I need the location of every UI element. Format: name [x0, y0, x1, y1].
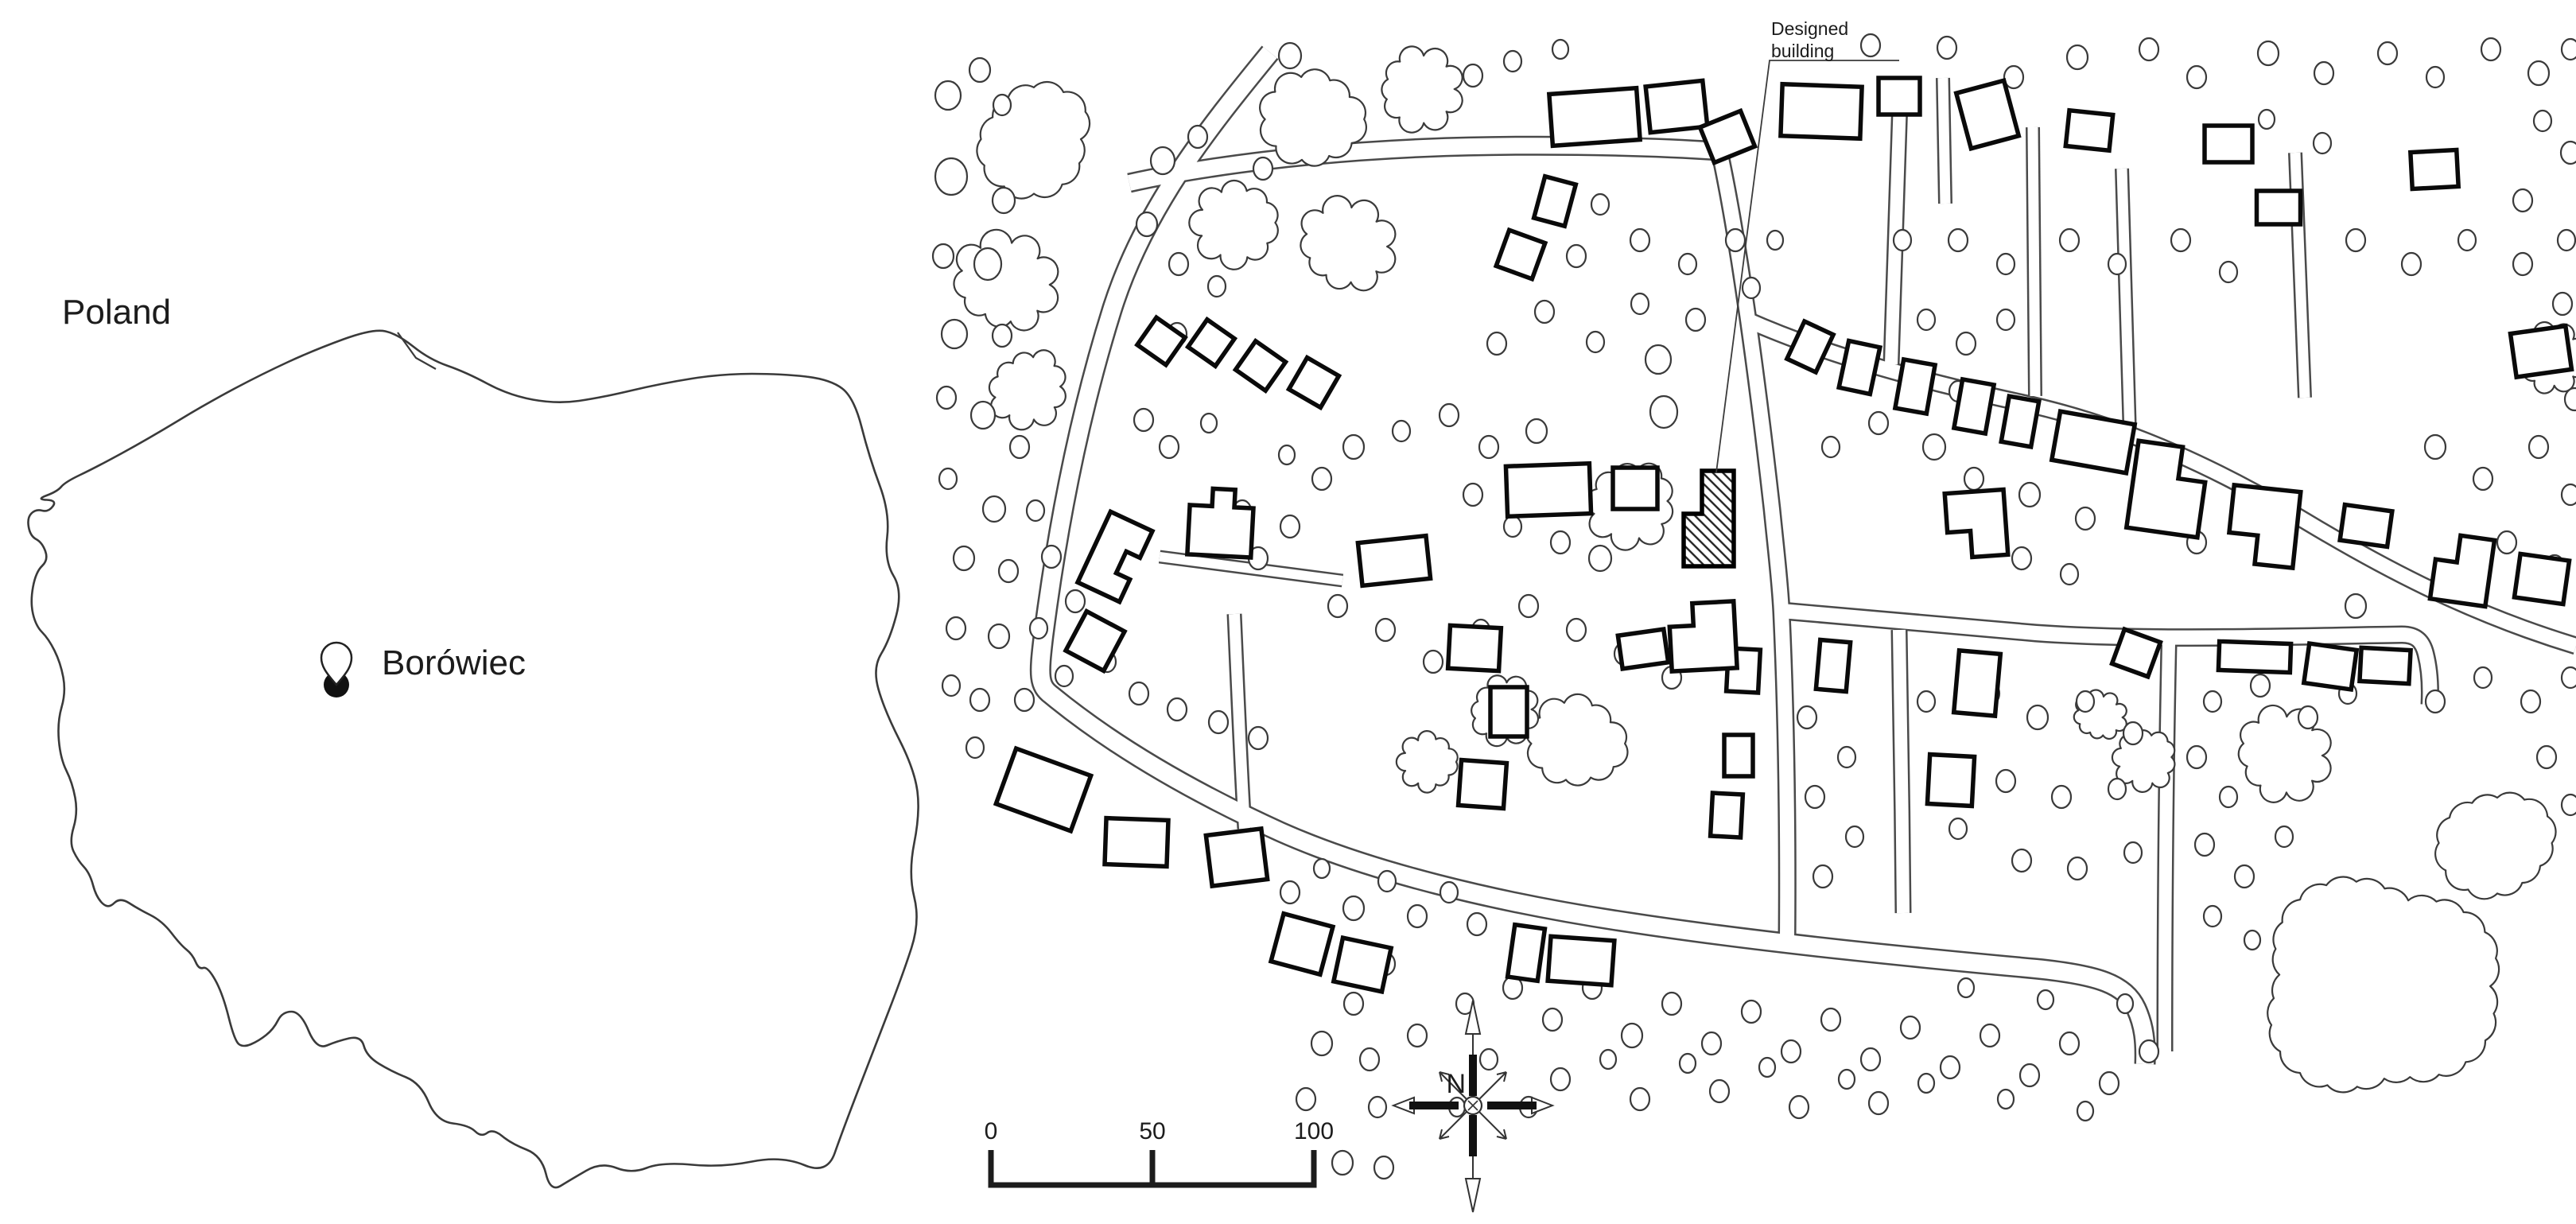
tree-circle [2537, 746, 2556, 768]
building [1787, 321, 1833, 372]
tree-circle [2314, 133, 2331, 153]
tree-circle [1822, 437, 1840, 457]
tree-circle [1980, 1024, 1999, 1047]
scale-tick-0: 0 [985, 1118, 998, 1144]
scale-tick-50: 50 [1139, 1118, 1165, 1144]
tree-circle [1964, 468, 1983, 490]
tree-circle [1311, 1032, 1332, 1055]
building [1839, 340, 1880, 394]
tree-circle [1480, 1049, 1498, 1070]
tree-circle [2426, 67, 2444, 87]
building [2514, 554, 2569, 604]
tree-circle [1279, 43, 1301, 68]
tree-circle [2521, 690, 2540, 713]
building [1954, 379, 1994, 433]
tree-circle [2529, 436, 2548, 458]
tree-circle [1956, 332, 1976, 355]
building [2511, 326, 2572, 377]
tree-circle [989, 624, 1009, 648]
tree-circle [1996, 770, 2015, 792]
tree-circle [1861, 34, 1880, 56]
tree-circle [969, 58, 990, 82]
building-l-shape [1078, 511, 1152, 601]
tree-circle [1821, 1008, 1840, 1031]
tree-circle [2562, 484, 2576, 505]
tree-circle [2077, 691, 2094, 712]
tree-circle [1015, 689, 1034, 711]
scale-bar: 0 50 100 [985, 1118, 1334, 1185]
tree-circle [2314, 62, 2333, 84]
tree-circle [2402, 253, 2421, 275]
tree-circle [966, 737, 984, 758]
figure-canvas: Poland Borówiec Designed building 0 50 1… [0, 0, 2576, 1224]
tree-circle [2345, 594, 2366, 618]
tree-circle [1680, 1054, 1696, 1073]
tree-circle [1360, 1048, 1379, 1071]
tree-circle [2187, 66, 2206, 88]
tree-circle [2473, 468, 2492, 490]
tree-cluster [2435, 793, 2555, 900]
building [1490, 687, 1527, 736]
building [1508, 925, 1545, 981]
tree-circle [2038, 990, 2053, 1009]
tree-circle [1622, 1024, 1642, 1047]
tree-circle [1997, 309, 2015, 330]
tree-circle [2139, 38, 2158, 60]
tree-circle [2204, 691, 2221, 712]
tree-circle [2244, 931, 2260, 950]
tree-circle [1312, 468, 1331, 490]
tree-circle [2139, 1040, 2158, 1063]
tree-circle [2061, 564, 2078, 585]
tree-circle [1918, 1074, 1934, 1093]
tree-circle [1209, 711, 1228, 733]
tree-circle [1997, 254, 2015, 274]
tree-circle [1314, 859, 1330, 878]
tree-circle [2012, 849, 2031, 872]
building [2065, 111, 2112, 151]
tree-circle [1369, 1097, 1386, 1117]
building [1271, 914, 1333, 974]
building [2411, 150, 2458, 189]
tree-circle [1813, 865, 1832, 888]
tree-circle [971, 402, 995, 429]
tree-circle [2027, 705, 2048, 729]
tree-circle [2020, 1064, 2039, 1086]
tree-circle [1587, 332, 1604, 352]
tree-circle [2117, 994, 2133, 1013]
tree-circle [1838, 747, 1855, 767]
poland-inset-map: Poland Borówiec [28, 293, 918, 1187]
building [1506, 464, 1591, 517]
vegetation-layer [933, 34, 2576, 1179]
tree-circle [935, 81, 961, 110]
tree-circle [1408, 905, 1427, 927]
road-surface [2033, 127, 2035, 396]
tree-circle [1424, 651, 1443, 673]
tree-circle [999, 560, 1018, 582]
tree-circle [2108, 779, 2126, 799]
tree-circle [1343, 435, 1364, 459]
tree-circle [1504, 51, 1521, 72]
compass-bar-s [1469, 1115, 1477, 1156]
tree-circle [2562, 39, 2576, 60]
tree-circle [2067, 45, 2088, 69]
tree-circle [1487, 332, 1506, 355]
tree-circle [1249, 727, 1268, 749]
tree-circle [1408, 1024, 1427, 1047]
tree-circle [2558, 230, 2575, 251]
building [1236, 341, 1286, 391]
building [1206, 829, 1267, 886]
tree-circle [1552, 40, 1568, 59]
tree-cluster [1381, 46, 1462, 132]
tree-circle [1160, 436, 1179, 458]
tree-circle [1861, 1048, 1880, 1071]
building-l-shape [1187, 488, 1254, 558]
tree-circle [2259, 110, 2275, 129]
building [1358, 536, 1430, 586]
tree-circle [2124, 842, 2142, 863]
building [1895, 359, 1935, 414]
tree-circle [1280, 515, 1300, 538]
tree-circle [983, 496, 1005, 522]
tree-circle [2458, 230, 2476, 251]
tree-circle [1645, 345, 1671, 374]
tree-circle [1949, 229, 1968, 251]
tree-circle [1280, 881, 1300, 903]
tree-circle [1662, 993, 1681, 1015]
compass-bar-w [1409, 1102, 1459, 1109]
tree-circle [2076, 507, 2095, 530]
tree-circle [1742, 1001, 1761, 1023]
poland-outline [28, 331, 918, 1187]
building [1816, 639, 1850, 691]
tree-circle [1630, 1088, 1649, 1110]
tree-circle [1479, 436, 1498, 458]
tree-circle [1279, 445, 1295, 464]
tree-circle [1551, 1068, 1570, 1090]
designed-building-label-line1: Designed [1771, 18, 1848, 39]
location-pin-icon [321, 643, 352, 697]
building [2001, 396, 2038, 447]
building [1613, 468, 1657, 509]
tree-circle [2052, 786, 2071, 808]
building [2340, 505, 2392, 547]
building [1645, 80, 1708, 132]
tree-circle [1789, 1096, 1809, 1118]
country-label: Poland [62, 293, 171, 332]
building [1534, 177, 1576, 227]
tree-circle [1743, 278, 1760, 298]
tree-circle [1759, 1058, 1775, 1077]
tree-circle [1344, 993, 1363, 1015]
tree-circle [2060, 1032, 2079, 1055]
tree-circle [1378, 871, 1396, 892]
tree-circle [2513, 189, 2532, 212]
tree-circle [1958, 978, 1974, 997]
tree-circle [1042, 546, 1061, 568]
tree-circle [954, 546, 974, 570]
tree-circle [1030, 618, 1047, 639]
tree-circle [1551, 531, 1570, 554]
tree-circle [1151, 147, 1175, 174]
tree-circle [2204, 906, 2221, 927]
tree-circle [1027, 500, 1044, 521]
tree-circle [1328, 595, 1347, 617]
building [1188, 320, 1234, 366]
tree-circle [2534, 111, 2551, 131]
tree-circle [1136, 212, 1157, 236]
tree-circle [2561, 142, 2576, 164]
tree-circle [1923, 434, 1945, 460]
tree-circle [970, 689, 989, 711]
tree-circle [1253, 157, 1272, 180]
tree-circle [2528, 61, 2549, 85]
tree-circle [2019, 483, 2040, 507]
tree-circle [2553, 293, 2572, 315]
building-l-shape [2226, 485, 2301, 568]
tree-circle [2235, 865, 2254, 888]
tree-circle [1567, 619, 1586, 641]
building [1711, 793, 1743, 837]
tree-circle [2123, 722, 2143, 744]
tree-circle [1869, 1092, 1888, 1114]
tree-circle [1535, 301, 1554, 323]
building [1105, 818, 1168, 867]
building [996, 748, 1090, 831]
tree-circle [1937, 37, 1956, 59]
tree-circle [1846, 826, 1863, 847]
building [2304, 643, 2356, 690]
tree-circle [1781, 1040, 1801, 1063]
building [1956, 80, 2019, 149]
tree-circle [2562, 667, 2576, 688]
road-surface [1899, 630, 1903, 913]
building [1879, 78, 1920, 115]
road-surface [1943, 78, 1945, 204]
tree-circle [1055, 666, 1073, 686]
scale-bar-line [991, 1150, 1314, 1185]
tree-circle [1504, 516, 1521, 537]
tree-cluster [1300, 196, 1395, 290]
tree-circle [1917, 309, 1935, 330]
site-location-figure: Poland Borówiec Designed building 0 50 1… [0, 0, 2576, 1224]
building-l-shape [1945, 490, 2008, 559]
tree-circle [1543, 1008, 1562, 1031]
tree-circle [1998, 1090, 2014, 1109]
tree-circle [1376, 619, 1395, 641]
building [1448, 625, 1502, 670]
building [2052, 411, 2135, 473]
building [1459, 760, 1507, 809]
tree-circle [1631, 293, 1649, 314]
compass-arrow-s [1466, 1179, 1480, 1212]
tree-circle [2108, 254, 2126, 274]
tree-circle [2562, 795, 2576, 815]
building [1289, 358, 1339, 408]
building [2360, 647, 2411, 683]
tree-circle [2497, 531, 2516, 554]
tree-circle [1767, 231, 1783, 250]
tree-circle [1941, 1056, 1960, 1078]
compass-bar-e [1487, 1102, 1537, 1109]
tree-circle [1710, 1080, 1729, 1102]
tree-cluster [989, 350, 1066, 429]
tree-circle [933, 244, 954, 268]
building [1781, 84, 1862, 138]
tree-circle [2513, 253, 2532, 275]
building-l-shape [1669, 601, 1737, 671]
designed-building-label-line2: building [1771, 41, 1834, 61]
tree-circle [1440, 882, 1458, 903]
tree-circle [1208, 276, 1226, 297]
road-surface [2165, 644, 2169, 1051]
tree-circle [2077, 1102, 2093, 1121]
tree-circle [1600, 1050, 1616, 1069]
tree-circle [942, 675, 960, 696]
tree-circle [1702, 1032, 1721, 1055]
tree-circle [2378, 42, 2397, 64]
tree-circle [1463, 484, 1482, 506]
building [1334, 938, 1391, 992]
tree-cluster [1397, 731, 1458, 792]
tree-circle [2425, 435, 2446, 459]
road-surface [1129, 146, 1719, 183]
tree-circle [2275, 826, 2293, 847]
tree-circle [1169, 253, 1188, 275]
building [1618, 629, 1668, 669]
tree-circle [946, 617, 966, 639]
tree-circle [1129, 682, 1148, 705]
building [1496, 230, 1545, 279]
tree-circle [1519, 595, 1538, 617]
tree-circle [2195, 833, 2214, 856]
tree-circle [1188, 126, 1207, 148]
tree-circle [1630, 229, 1649, 251]
tree-circle [935, 158, 967, 195]
tree-circle [1917, 691, 1935, 712]
building [2218, 641, 2290, 672]
city-label: Borówiec [382, 643, 526, 682]
tree-circle [939, 468, 957, 489]
building-l-shape [2430, 533, 2494, 607]
tree-circle [2060, 229, 2079, 251]
tree-circle [1201, 414, 1217, 433]
tree-circle [1168, 698, 1187, 721]
tree-circle [1066, 590, 1085, 612]
tree-circle [942, 320, 967, 348]
scale-tick-100: 100 [1294, 1118, 1334, 1144]
tree-circle [2100, 1072, 2119, 1094]
tree-circle [1686, 309, 1705, 331]
tree-circle [1591, 194, 1609, 215]
compass-bar-n [1469, 1055, 1477, 1096]
tree-cluster [2267, 877, 2499, 1093]
tree-circle [1332, 1151, 1353, 1175]
tree-circle [1374, 1156, 1393, 1179]
tree-circle [2474, 667, 2492, 688]
tree-cluster [1526, 694, 1628, 786]
building [1927, 755, 1974, 806]
building [2257, 191, 2301, 224]
tree-circle [2220, 262, 2237, 282]
tree-circle [2298, 706, 2318, 729]
tree-circle [1869, 412, 1888, 434]
tree-circle [2481, 38, 2500, 60]
tree-circle [1726, 229, 1745, 251]
tree-circle [2251, 674, 2270, 697]
tree-circle [1296, 1088, 1315, 1110]
tree-cluster [1189, 181, 1278, 270]
tree-circle [1679, 254, 1696, 274]
tree-circle [1805, 786, 1824, 808]
north-label: N [1446, 1069, 1466, 1099]
tree-circle [993, 95, 1011, 115]
designed-building-shape [1684, 471, 1734, 566]
tree-circle [1010, 436, 1029, 458]
building [1724, 735, 1753, 776]
tree-circle [1463, 64, 1482, 87]
tree-circle [1650, 396, 1677, 428]
tree-circle [974, 248, 1001, 280]
tree-circle [1134, 409, 1153, 431]
tree-circle [2220, 787, 2237, 807]
tree-circle [2565, 388, 2576, 410]
building [1549, 88, 1640, 146]
tree-circle [1949, 818, 1967, 839]
tree-circle [937, 387, 956, 409]
tree-circle [1393, 421, 1410, 441]
building [1548, 936, 1614, 985]
tree-circle [2012, 547, 2031, 569]
tree-circle [993, 324, 1012, 347]
tree-circle [2187, 746, 2206, 768]
tree-circle [1467, 913, 1486, 935]
tree-circle [2426, 690, 2445, 713]
tree-circle [1567, 245, 1586, 267]
tree-circle [1901, 1016, 1920, 1039]
tree-circle [1440, 404, 1459, 426]
tree-circle [1526, 419, 1547, 443]
tree-circle [2171, 229, 2190, 251]
tree-circle [1797, 706, 1816, 729]
tree-circle [2068, 857, 2087, 880]
tree-circle [2258, 41, 2279, 65]
tree-circle [1839, 1070, 1855, 1089]
building [2205, 126, 2252, 162]
tree-circle [1343, 896, 1364, 920]
tree-circle [1589, 546, 1611, 571]
tree-circle [1894, 230, 1911, 251]
building [1954, 651, 2001, 716]
tree-cluster [954, 230, 1058, 331]
tree-circle [993, 188, 1015, 213]
tree-circle [2346, 229, 2365, 251]
